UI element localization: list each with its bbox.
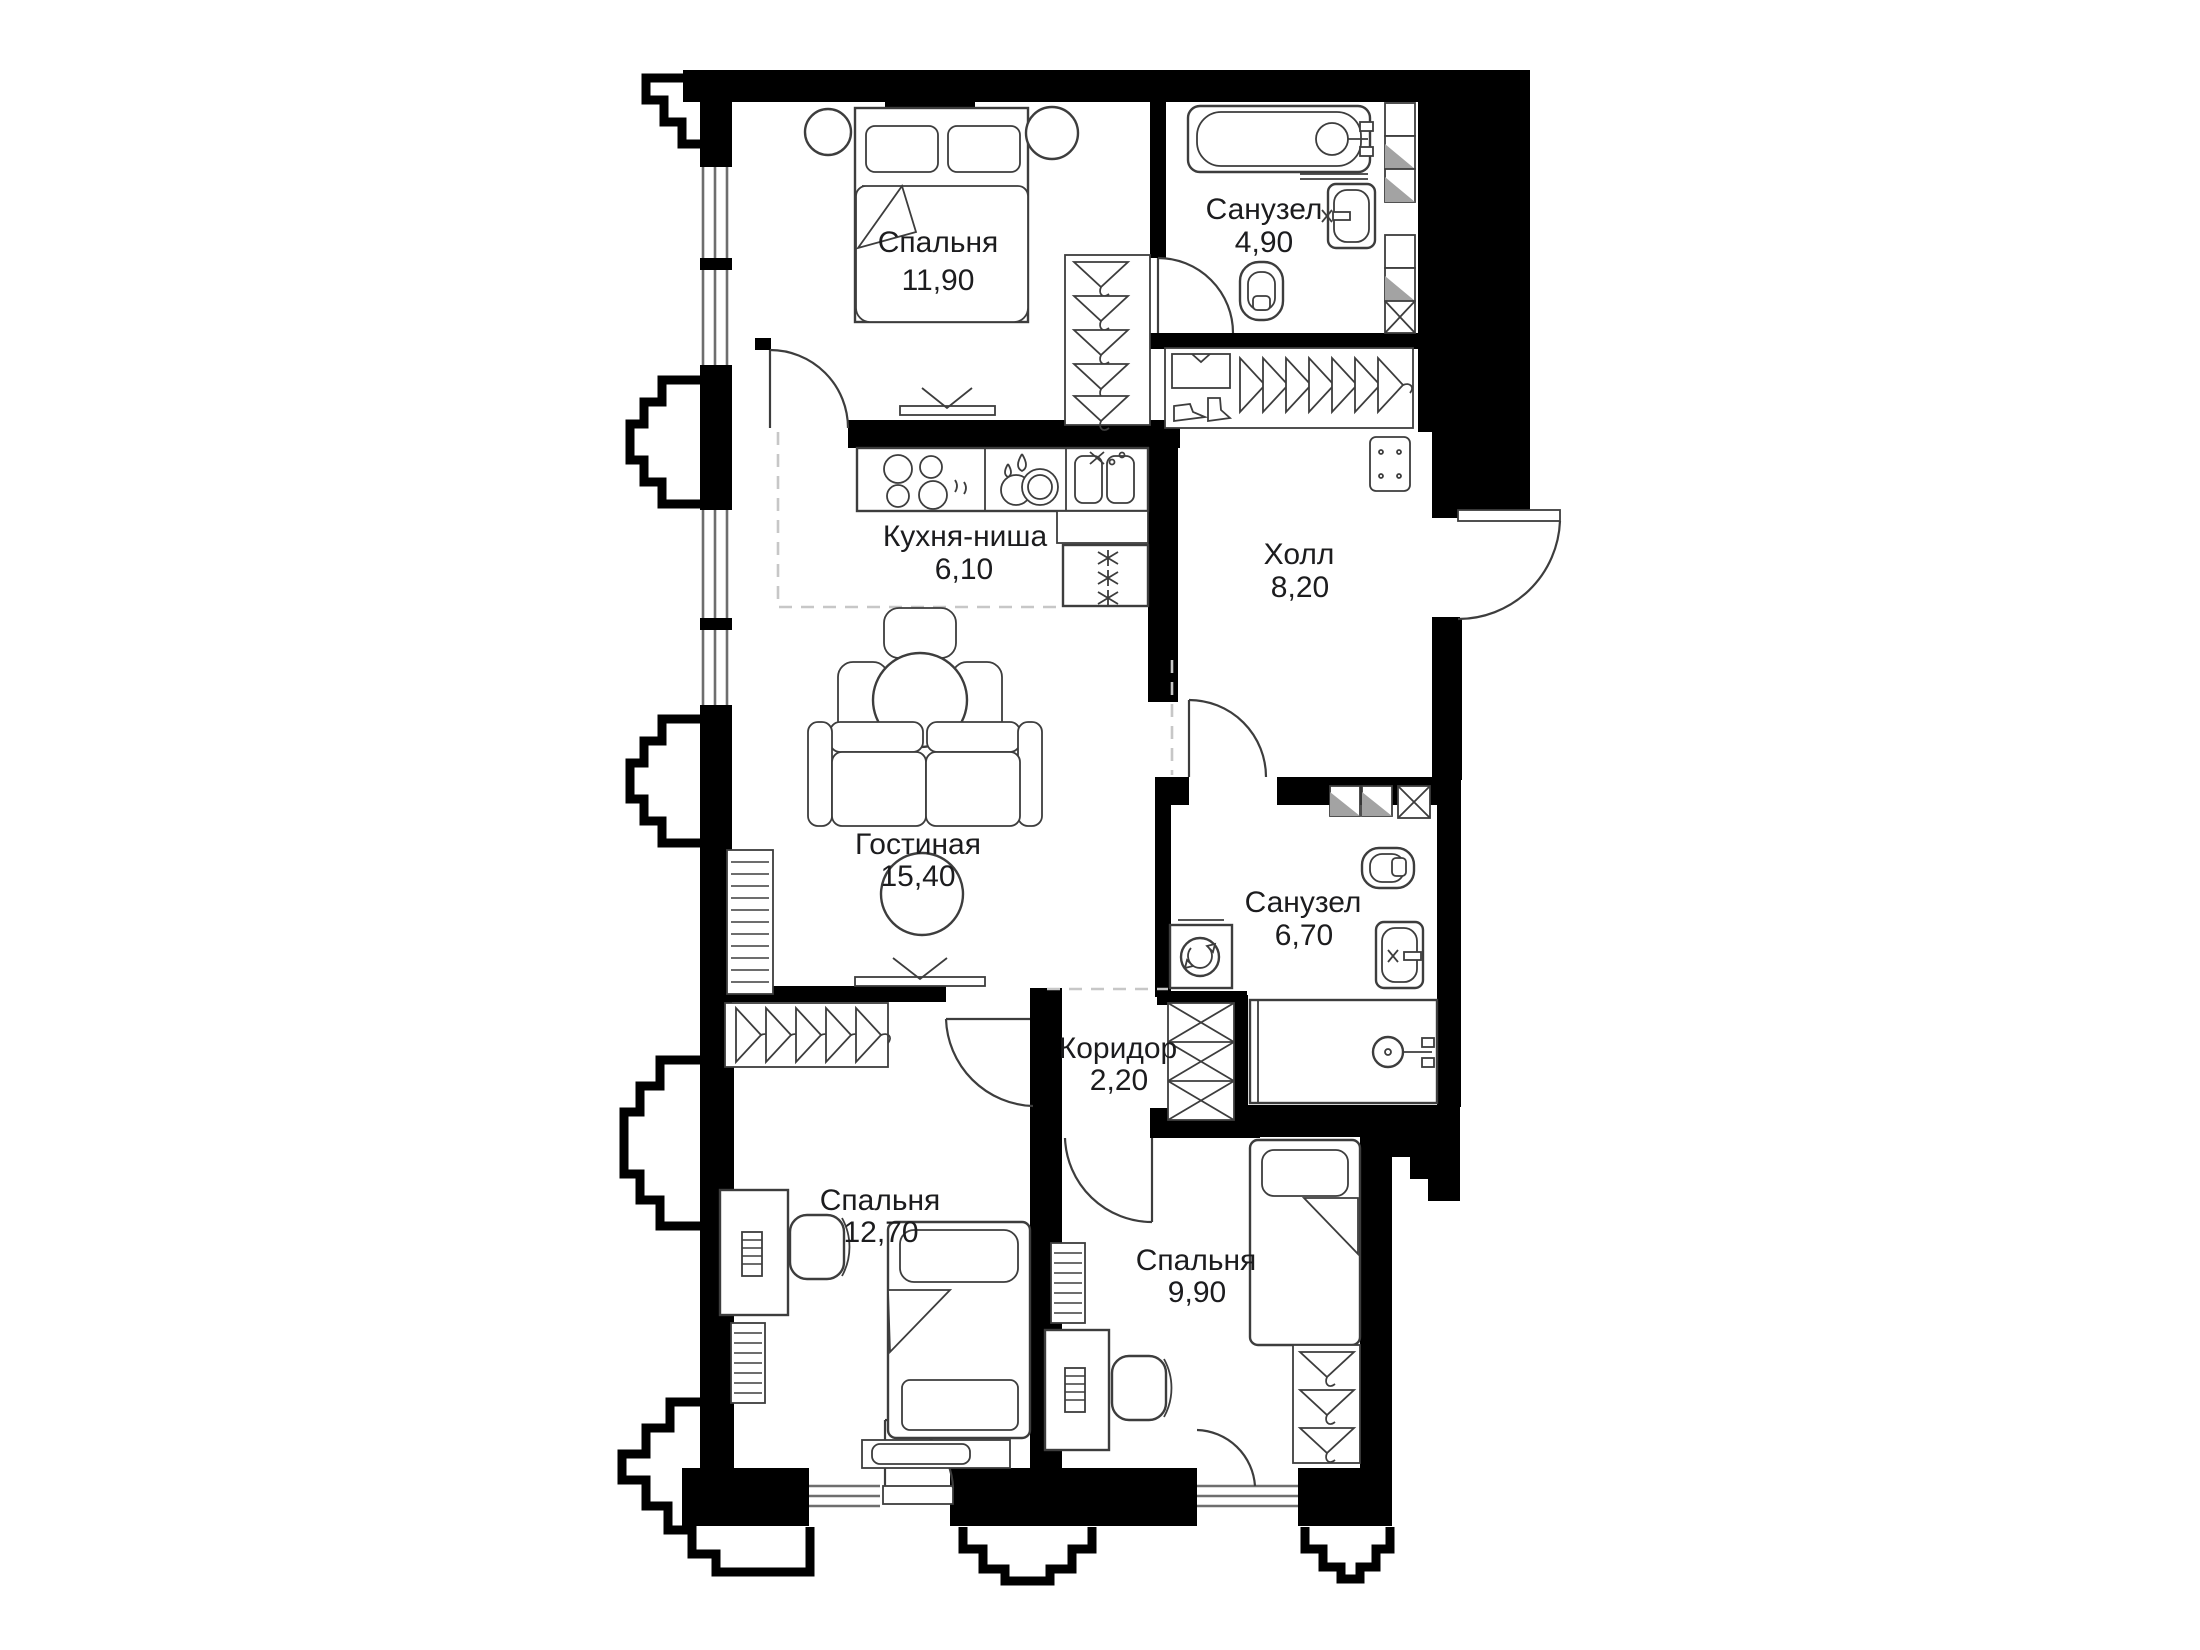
towel-shelf-icon — [1330, 786, 1430, 818]
hall-fixtures — [1370, 437, 1410, 491]
room-area-bedroom-2: 12,70 — [843, 1218, 918, 1248]
room-label-hall: Холл — [1264, 540, 1335, 570]
tv-icon — [900, 388, 995, 415]
washbasin-icon — [1322, 184, 1375, 248]
room-label-kitchen-niche: Кухня-ниша — [883, 522, 1047, 552]
room-area-living-room: 15,40 — [880, 862, 955, 892]
washing-machine-icon — [1170, 920, 1232, 988]
office-chair-icon — [790, 1215, 849, 1279]
room-label-bedroom-1: Спальня — [878, 228, 999, 258]
room-area-bedroom-3: 9,90 — [1168, 1278, 1226, 1308]
door-icon — [1065, 1138, 1152, 1222]
room-area-bathroom-1: 4,90 — [1235, 228, 1293, 258]
nightstand-icon — [805, 109, 851, 155]
radiator-icon — [731, 1323, 765, 1403]
door-icon — [1189, 700, 1266, 777]
doormat-icon — [1370, 437, 1410, 491]
single-bed-icon — [1250, 1140, 1360, 1345]
room-label-bathroom-1: Санузел — [1206, 195, 1323, 225]
desk-icon — [1045, 1330, 1109, 1450]
kitchen-fixtures — [838, 448, 1148, 747]
toilet-icon — [1362, 848, 1414, 888]
bathtub-icon — [1188, 106, 1373, 179]
single-bed-icon — [888, 1222, 1030, 1438]
radiator-icon — [1051, 1243, 1085, 1323]
wardrobe-hangers-icon — [1293, 1345, 1360, 1463]
window-icon — [809, 1486, 880, 1506]
bedroom-1-furniture — [805, 107, 1150, 430]
office-chair-icon — [1112, 1356, 1171, 1420]
wardrobe-hangers-icon — [1065, 255, 1150, 430]
tv-icon — [855, 958, 985, 986]
washbasin-icon — [1376, 922, 1423, 988]
door-icon — [770, 350, 848, 428]
storage-closet-icon — [1168, 1003, 1234, 1120]
room-label-corridor: Коридор — [1059, 1034, 1177, 1064]
door-icon — [946, 1019, 1033, 1106]
bench-icon — [862, 1440, 1010, 1468]
door-icon — [1158, 258, 1233, 333]
room-area-kitchen-niche: 6,10 — [935, 555, 993, 585]
entry-wardrobe-icon — [1165, 348, 1413, 428]
room-label-bedroom-3: Спальня — [1136, 1246, 1257, 1276]
wardrobe-hangers-icon — [725, 1003, 890, 1067]
toilet-icon — [1240, 262, 1283, 320]
chair-icon — [884, 608, 956, 658]
window-icon — [700, 510, 732, 705]
entrance-door-icon — [1458, 510, 1560, 619]
room-area-hall: 8,20 — [1271, 573, 1329, 603]
room-label-bedroom-2: Спальня — [820, 1186, 941, 1216]
radiator-icon — [727, 850, 773, 994]
floor-plan-canvas: Спальня 11,90 Санузел 4,90 Кухня-ниша 6,… — [0, 0, 2200, 1650]
shirt-icon — [1172, 354, 1230, 388]
window-icon — [1197, 1430, 1298, 1506]
room-area-bedroom-1: 11,90 — [902, 266, 975, 296]
room-area-corridor: 2,20 — [1090, 1066, 1148, 1096]
desk-icon — [720, 1190, 788, 1315]
floor-plan-drawing — [0, 0, 2200, 1650]
window-icon — [700, 167, 732, 365]
room-label-bathroom-2: Санузел — [1245, 888, 1362, 918]
shower-icon — [1250, 1000, 1437, 1103]
room-label-living-room: Гостиная — [855, 830, 981, 860]
room-area-bathroom-2: 6,70 — [1275, 921, 1333, 951]
nightstand-icon — [1026, 107, 1078, 159]
linen-shelves-icon — [1385, 103, 1415, 333]
fridge-icon — [1063, 545, 1148, 606]
